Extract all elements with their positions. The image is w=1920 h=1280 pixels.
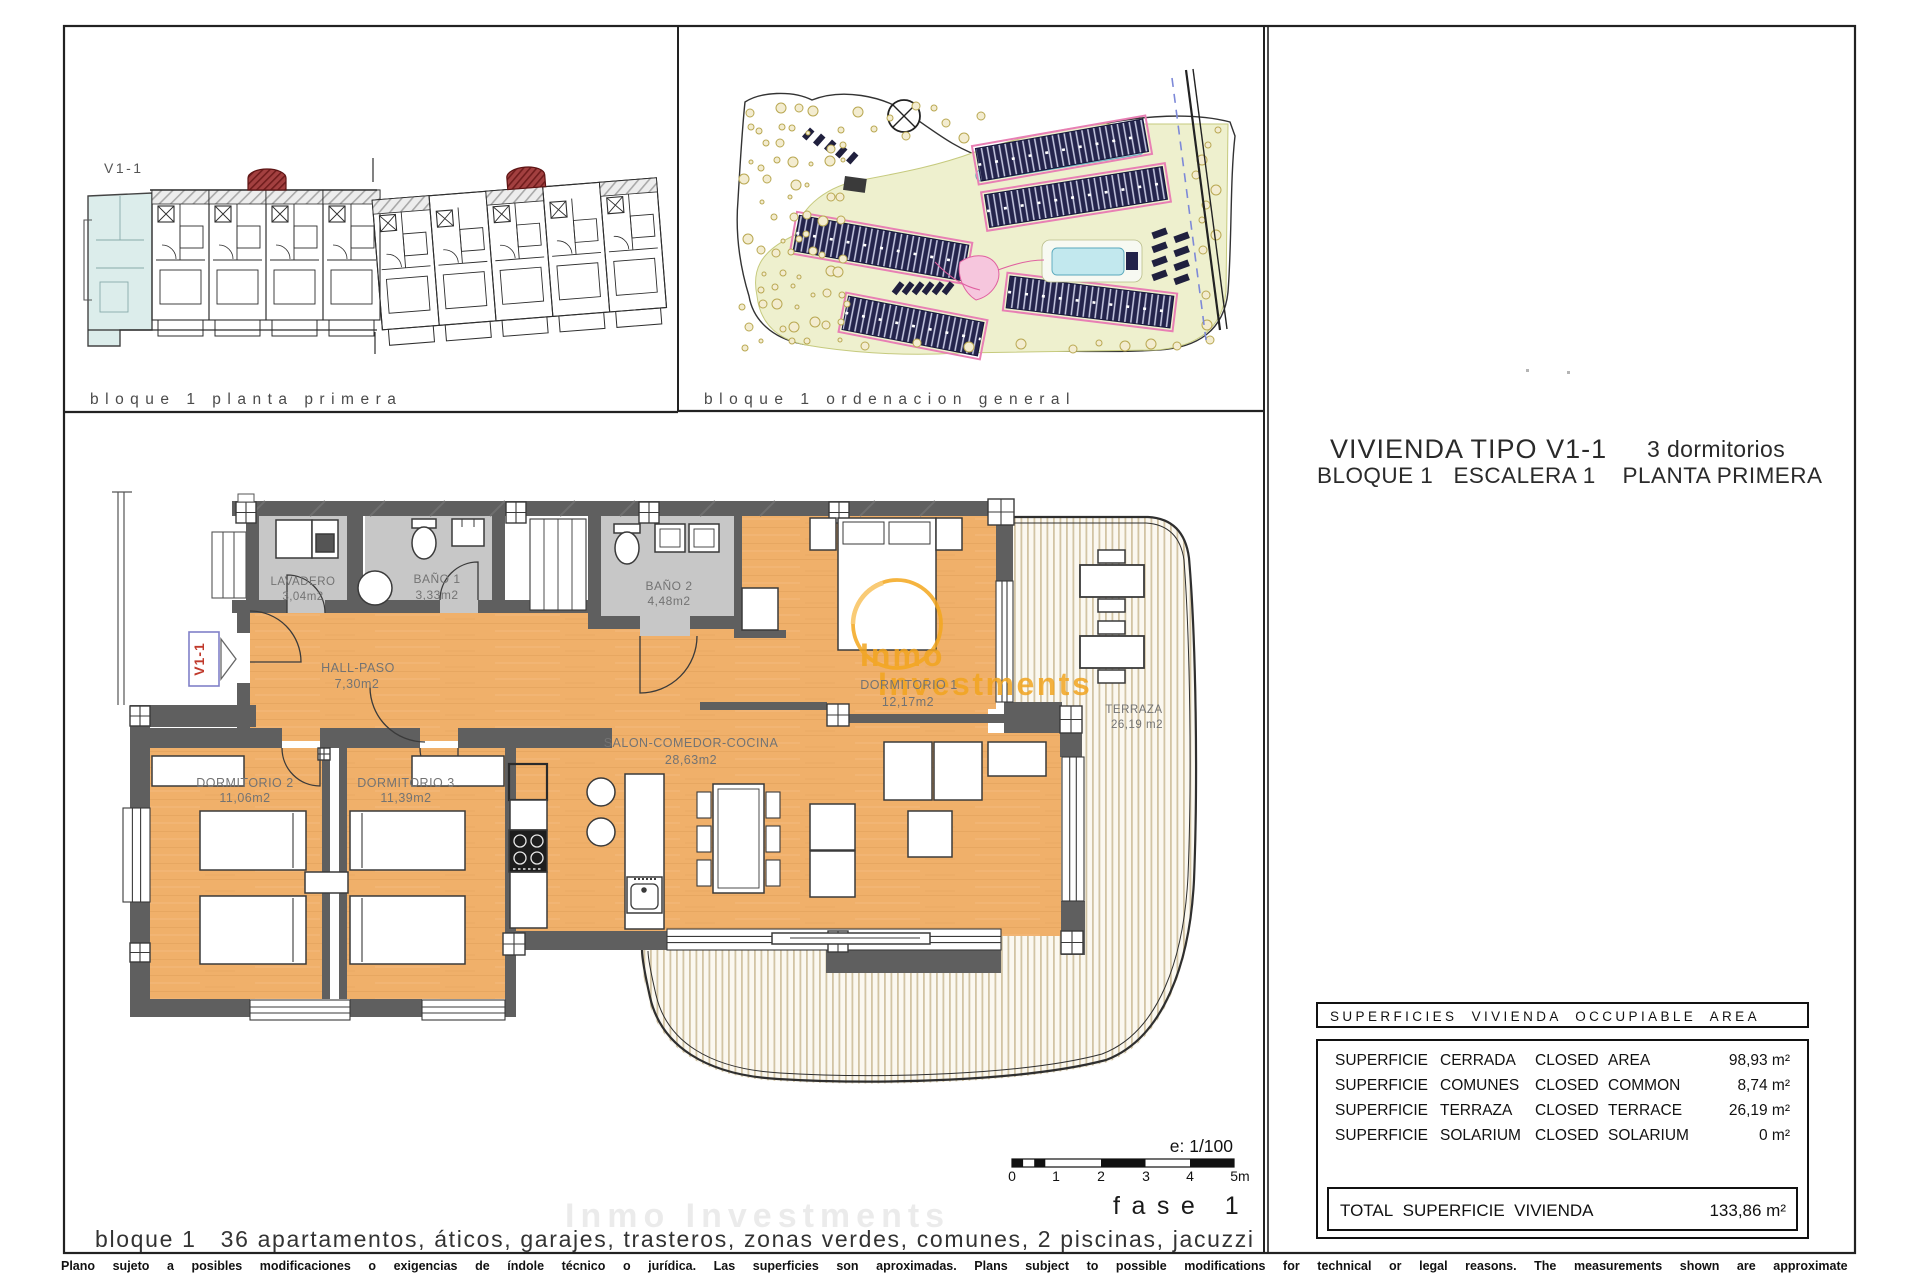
svg-text:0 m²: 0 m² [1759,1127,1790,1144]
svg-text:bloque 1 36 apartamentos, át: bloque 1 36 apartamentos, áticos, garaje… [95,1226,1253,1252]
svg-text:SOLARIUM: SOLARIUM [1440,1127,1521,1144]
svg-text:SUPERFICIE: SUPERFICIE [1335,1052,1428,1069]
svg-text:CLOSED: CLOSED [1535,1077,1599,1094]
svg-text:SUPERFICIES VIVIENDA OCCUPIABL: SUPERFICIES VIVIENDA OCCUPIABLE AREA [1330,1009,1760,1024]
svg-text:5m: 5m [1230,1168,1249,1184]
svg-text:4,48m2: 4,48m2 [647,594,690,608]
svg-text:SUPERFICIE: SUPERFICIE [1335,1077,1428,1094]
svg-text:DORMITORIO 2: DORMITORIO 2 [196,776,293,790]
svg-text:SALON-COMEDOR-COCINA: SALON-COMEDOR-COCINA [604,736,779,750]
svg-text:3,04m2: 3,04m2 [282,591,323,603]
svg-text:3: 3 [1142,1168,1150,1184]
svg-text:AREA: AREA [1608,1052,1651,1069]
svg-text:DORMITORIO 3: DORMITORIO 3 [357,776,454,790]
svg-text:TERRAZA: TERRAZA [1105,704,1162,716]
svg-text:Plano sujeto a posibles modifi: Plano sujeto a posibles modificaciones o… [61,1259,1848,1273]
svg-text:TOTAL SUPERFICIE VIVIENDA: TOTAL SUPERFICIE VIVIENDA [1340,1201,1594,1220]
svg-text:SUPERFICIE: SUPERFICIE [1335,1102,1428,1119]
svg-text:28,63m2: 28,63m2 [665,753,717,767]
svg-text:SUPERFICIE: SUPERFICIE [1335,1127,1428,1144]
svg-text:11,06m2: 11,06m2 [219,791,270,805]
svg-text:BLOQUE 1 ESCALERA 1 PLANT: BLOQUE 1 ESCALERA 1 PLANTA PRIMERA [1317,463,1822,488]
svg-text:11,39m2: 11,39m2 [380,791,431,805]
svg-text:DORMITORIO 1: DORMITORIO 1 [860,678,957,692]
svg-text:7,30m2: 7,30m2 [335,677,380,691]
svg-text:26,19 m²: 26,19 m² [1729,1102,1790,1119]
svg-text:TERRAZA: TERRAZA [1440,1102,1513,1119]
svg-text:12,17m2: 12,17m2 [882,695,934,709]
svg-text:CLOSED: CLOSED [1535,1127,1599,1144]
svg-text:LAVADERO: LAVADERO [271,576,336,588]
svg-text:VIVIENDA TIPO V1-1: VIVIENDA TIPO V1-1 [1330,434,1607,464]
svg-text:V1-1: V1-1 [104,160,144,176]
svg-text:1: 1 [1052,1168,1060,1184]
svg-text:bloque 1 planta primera: bloque 1 planta primera [90,391,402,408]
svg-text:BAÑO 2: BAÑO 2 [645,579,692,593]
svg-text:fase 1: fase 1 [1113,1192,1250,1220]
svg-text:TERRACE: TERRACE [1608,1102,1682,1119]
svg-text:BAÑO 1: BAÑO 1 [413,572,460,586]
svg-text:HALL-PASO: HALL-PASO [321,661,395,675]
svg-text:bloque 1 ordenacion general: bloque 1 ordenacion general [704,391,1076,408]
svg-text:133,86 m²: 133,86 m² [1709,1201,1786,1220]
svg-text:4: 4 [1186,1168,1194,1184]
svg-text:3,33m2: 3,33m2 [415,588,458,602]
svg-text:98,93 m²: 98,93 m² [1729,1052,1790,1069]
svg-text:COMUNES: COMUNES [1440,1077,1519,1094]
svg-text:2: 2 [1097,1168,1105,1184]
svg-text:CERRADA: CERRADA [1440,1052,1516,1069]
svg-text:26,19 m2: 26,19 m2 [1111,719,1163,731]
svg-text:8,74 m²: 8,74 m² [1737,1077,1790,1094]
svg-text:V1-1: V1-1 [191,642,207,676]
svg-text:CLOSED: CLOSED [1535,1052,1599,1069]
svg-text:0: 0 [1008,1168,1016,1184]
svg-text:3 dormitorios: 3 dormitorios [1647,436,1785,462]
svg-text:COMMON: COMMON [1608,1077,1680,1094]
svg-text:e: 1/100: e: 1/100 [1170,1136,1234,1156]
svg-text:CLOSED: CLOSED [1535,1102,1599,1119]
svg-text:SOLARIUM: SOLARIUM [1608,1127,1689,1144]
